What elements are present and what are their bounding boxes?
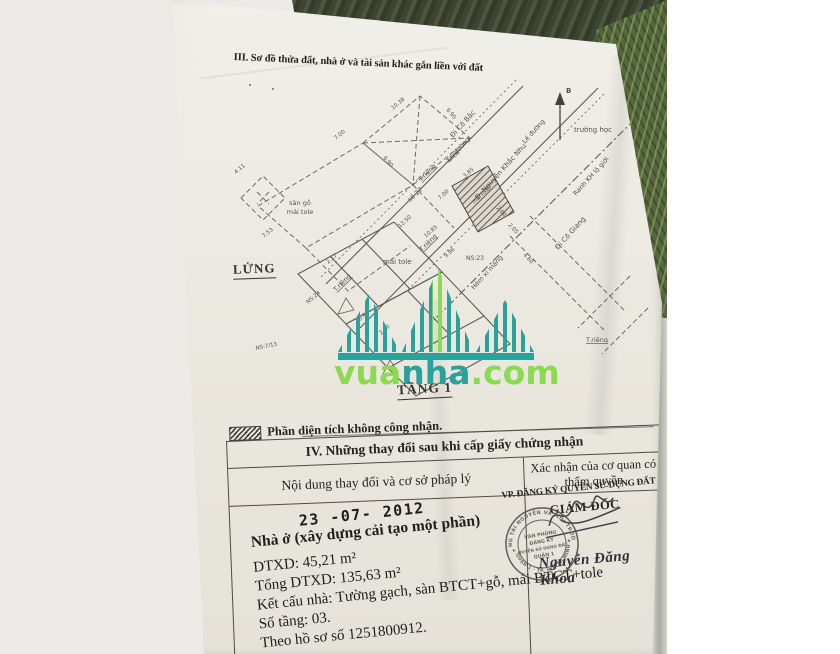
svg-text:7.00: 7.00: [333, 129, 347, 142]
svg-text:2.05: 2.05: [507, 222, 520, 235]
photo-area: III. Sơ đồ thửa đất, nhà ở và tài sản kh…: [0, 0, 667, 654]
label-ns24: NS:24: [305, 290, 322, 305]
logo-house-left: [338, 294, 400, 352]
mezzanine-outline: [241, 96, 470, 291]
watermark-part1: vua: [334, 353, 401, 392]
svg-text:4.11: 4.11: [233, 163, 246, 175]
stray-dot: [249, 84, 251, 86]
north-arrow-icon: B: [555, 87, 571, 140]
label-san-go: sàn gỗ: [289, 198, 311, 207]
label-le-duong: Lề đường: [521, 118, 547, 146]
label-mai-tole: mái tole: [287, 208, 314, 216]
watermark-part3: .com: [471, 353, 560, 392]
mezzanine-floor-label: LỬNG: [233, 260, 276, 279]
svg-text:12.50: 12.50: [397, 214, 413, 229]
label-ns713: NS:7/13: [255, 341, 278, 352]
label-truong-hoc: trường học: [574, 126, 612, 134]
floor1-label: TẦNG 1: [397, 380, 453, 401]
label-t-rieng: T.riêng: [416, 162, 438, 184]
certificate-photo-page: III. Sơ đồ thửa đất, nhà ở và tài sản kh…: [0, 0, 840, 654]
label-t-rieng: T.riêng: [585, 336, 608, 344]
svg-text:10.38: 10.38: [390, 96, 406, 111]
svg-text:9.96: 9.96: [443, 246, 456, 259]
label-di-co-giang: Đi Cô Giang: [554, 215, 588, 251]
certificate-paper: III. Sơ đồ thửa đất, nhà ở và tài sản kh…: [0, 0, 667, 654]
vuanha-watermark-logo: [338, 268, 534, 360]
svg-text:B: B: [566, 87, 571, 95]
unrecognized-area-hatch: [452, 166, 514, 232]
svg-text:7.53: 7.53: [261, 227, 275, 240]
seal-star-left: ★: [511, 548, 517, 555]
svg-text:6.90: 6.90: [444, 107, 457, 121]
svg-text:4.60: 4.60: [522, 252, 535, 265]
label-mai-tole: mái tole: [383, 258, 412, 266]
hatch-swatch-icon: [229, 425, 261, 440]
svg-text:7.00: 7.00: [437, 188, 450, 201]
label-ns23: NS:23: [466, 255, 484, 262]
logo-house-right: [476, 300, 534, 352]
stray-dot: [272, 88, 274, 90]
